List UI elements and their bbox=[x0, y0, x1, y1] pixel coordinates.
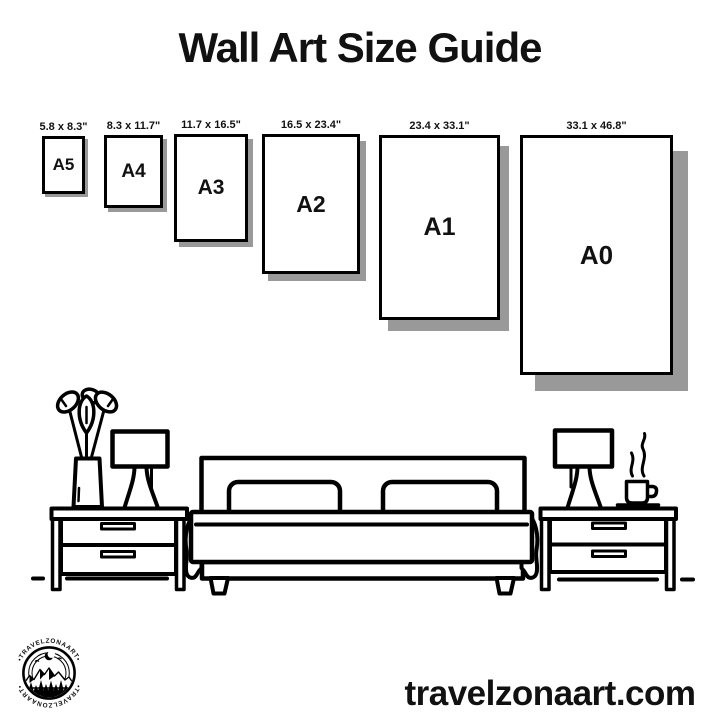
size-dimensions-label: 5.8 x 8.3" bbox=[39, 121, 87, 133]
nightstand-leg bbox=[53, 519, 61, 590]
steam-line bbox=[631, 453, 633, 476]
drawer-handle bbox=[102, 552, 135, 558]
size-name: A0 bbox=[580, 240, 613, 271]
size-dimensions-label: 23.4 x 33.1" bbox=[409, 120, 469, 132]
steam-line bbox=[642, 434, 645, 477]
size-frame-a3: 11.7 x 16.5" A3 bbox=[174, 134, 248, 242]
table-lamp-right bbox=[555, 431, 612, 512]
cup-body bbox=[627, 482, 648, 504]
size-name: A3 bbox=[198, 176, 225, 200]
bed-base bbox=[202, 562, 523, 579]
size-dimensions-label: 8.3 x 11.7" bbox=[107, 120, 161, 132]
drawer-handle bbox=[593, 551, 626, 557]
size-name: A1 bbox=[424, 213, 456, 242]
size-frame-a0: 33.1 x 46.8" A0 bbox=[520, 135, 673, 375]
bed-leg-right bbox=[497, 578, 515, 594]
lamp-shade bbox=[555, 431, 612, 467]
duvet bbox=[191, 512, 532, 562]
brand-logo-badge: •TRAVELZONAART• •TRAVELZONAART• bbox=[10, 634, 88, 712]
size-name: A4 bbox=[121, 161, 145, 183]
nightstand-right bbox=[541, 509, 677, 590]
bed-leg-left bbox=[211, 578, 229, 594]
size-dimensions-label: 11.7 x 16.5" bbox=[181, 119, 241, 131]
nightstand-top bbox=[52, 509, 188, 520]
size-frame-a4: 8.3 x 11.7" A4 bbox=[104, 135, 163, 208]
size-dimensions-label: 16.5 x 23.4" bbox=[281, 119, 341, 131]
nightstand-leg bbox=[542, 519, 550, 590]
size-dimensions-label: 33.1 x 46.8" bbox=[566, 120, 626, 132]
website-text: travelzonaart.com bbox=[380, 674, 720, 714]
bed bbox=[186, 458, 538, 594]
drawer-handle bbox=[593, 523, 626, 529]
size-frame-a1: 23.4 x 33.1" A1 bbox=[379, 135, 500, 320]
size-name: A2 bbox=[296, 191, 325, 218]
size-frame-a5: 5.8 x 8.3" A5 bbox=[42, 136, 85, 194]
page-title: Wall Art Size Guide bbox=[0, 24, 720, 72]
bedroom-illustration bbox=[0, 380, 720, 605]
size-frame-a2: 16.5 x 23.4" A2 bbox=[262, 134, 360, 274]
lamp-stand bbox=[124, 467, 160, 512]
lamp-shade bbox=[113, 432, 168, 467]
coffee-cup bbox=[618, 434, 659, 506]
nightstand-top bbox=[541, 509, 677, 520]
drawer-handle bbox=[102, 524, 135, 530]
table-lamp-left bbox=[113, 432, 168, 512]
size-name: A5 bbox=[53, 155, 75, 175]
